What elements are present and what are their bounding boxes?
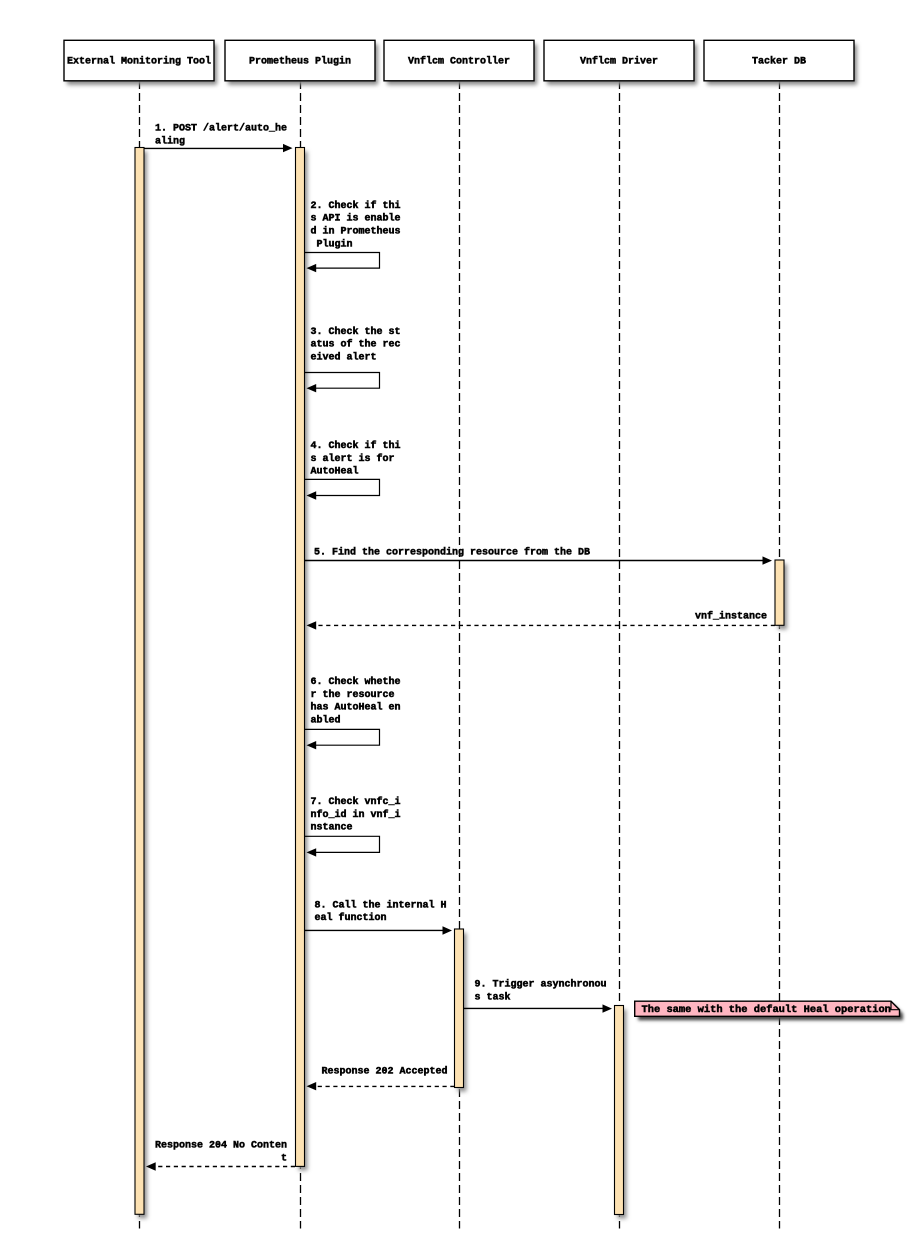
svg-text:Prometheus Plugin: Prometheus Plugin <box>249 56 351 68</box>
svg-text:s API is enable: s API is enable <box>311 213 401 225</box>
svg-text:s task: s task <box>475 991 511 1003</box>
svg-text:5. Find the corresponding reso: 5. Find the corresponding resource from … <box>314 547 590 559</box>
svg-text:Vnflcm Controller: Vnflcm Controller <box>408 56 510 68</box>
svg-text:9. Trigger asynchronou: 9. Trigger asynchronou <box>475 978 607 990</box>
svg-text:External Monitoring Tool: External Monitoring Tool <box>67 56 211 68</box>
svg-text:nfo_id in vnf_i: nfo_id in vnf_i <box>311 809 401 821</box>
svg-text:6. Check whethe: 6. Check whethe <box>311 676 401 688</box>
svg-text:Tacker DB: Tacker DB <box>752 56 806 68</box>
svg-text:Vnflcm Driver: Vnflcm Driver <box>580 56 658 68</box>
svg-text:aling: aling <box>155 136 185 148</box>
svg-text:nstance: nstance <box>311 822 353 833</box>
svg-text:s alert is for: s alert is for <box>311 453 395 465</box>
svg-text:vnf_instance: vnf_instance <box>695 611 767 623</box>
svg-text:Response 202 Accepted: Response 202 Accepted <box>321 1066 447 1078</box>
svg-text:atus of the rec: atus of the rec <box>311 339 401 351</box>
svg-text:8. Call the internal H: 8. Call the internal H <box>315 899 447 911</box>
svg-text:d in Prometheus: d in Prometheus <box>311 226 401 238</box>
svg-text:r the resource: r the resource <box>311 689 395 701</box>
svg-text:Response 204 No Conten: Response 204 No Conten <box>155 1140 287 1151</box>
svg-text:3. Check the st: 3. Check the st <box>311 326 401 338</box>
svg-text:abled: abled <box>311 714 341 726</box>
svg-text:eal function: eal function <box>315 912 387 924</box>
svg-text:Plugin: Plugin <box>317 238 353 250</box>
svg-text:has AutoHeal en: has AutoHeal en <box>311 702 401 714</box>
svg-text:AutoHeal: AutoHeal <box>311 466 359 478</box>
svg-text:The same with the default Heal: The same with the default Heal operation <box>642 1004 891 1016</box>
svg-text:7. Check vnfc_i: 7. Check vnfc_i <box>311 796 401 808</box>
svg-text:t: t <box>281 1153 287 1164</box>
svg-text:eived alert: eived alert <box>311 352 377 364</box>
svg-text:2. Check if thi: 2. Check if thi <box>311 200 401 212</box>
svg-text:1. POST /alert/auto_he: 1. POST /alert/auto_he <box>155 123 287 135</box>
svg-text:4. Check if thi: 4. Check if thi <box>311 440 401 452</box>
